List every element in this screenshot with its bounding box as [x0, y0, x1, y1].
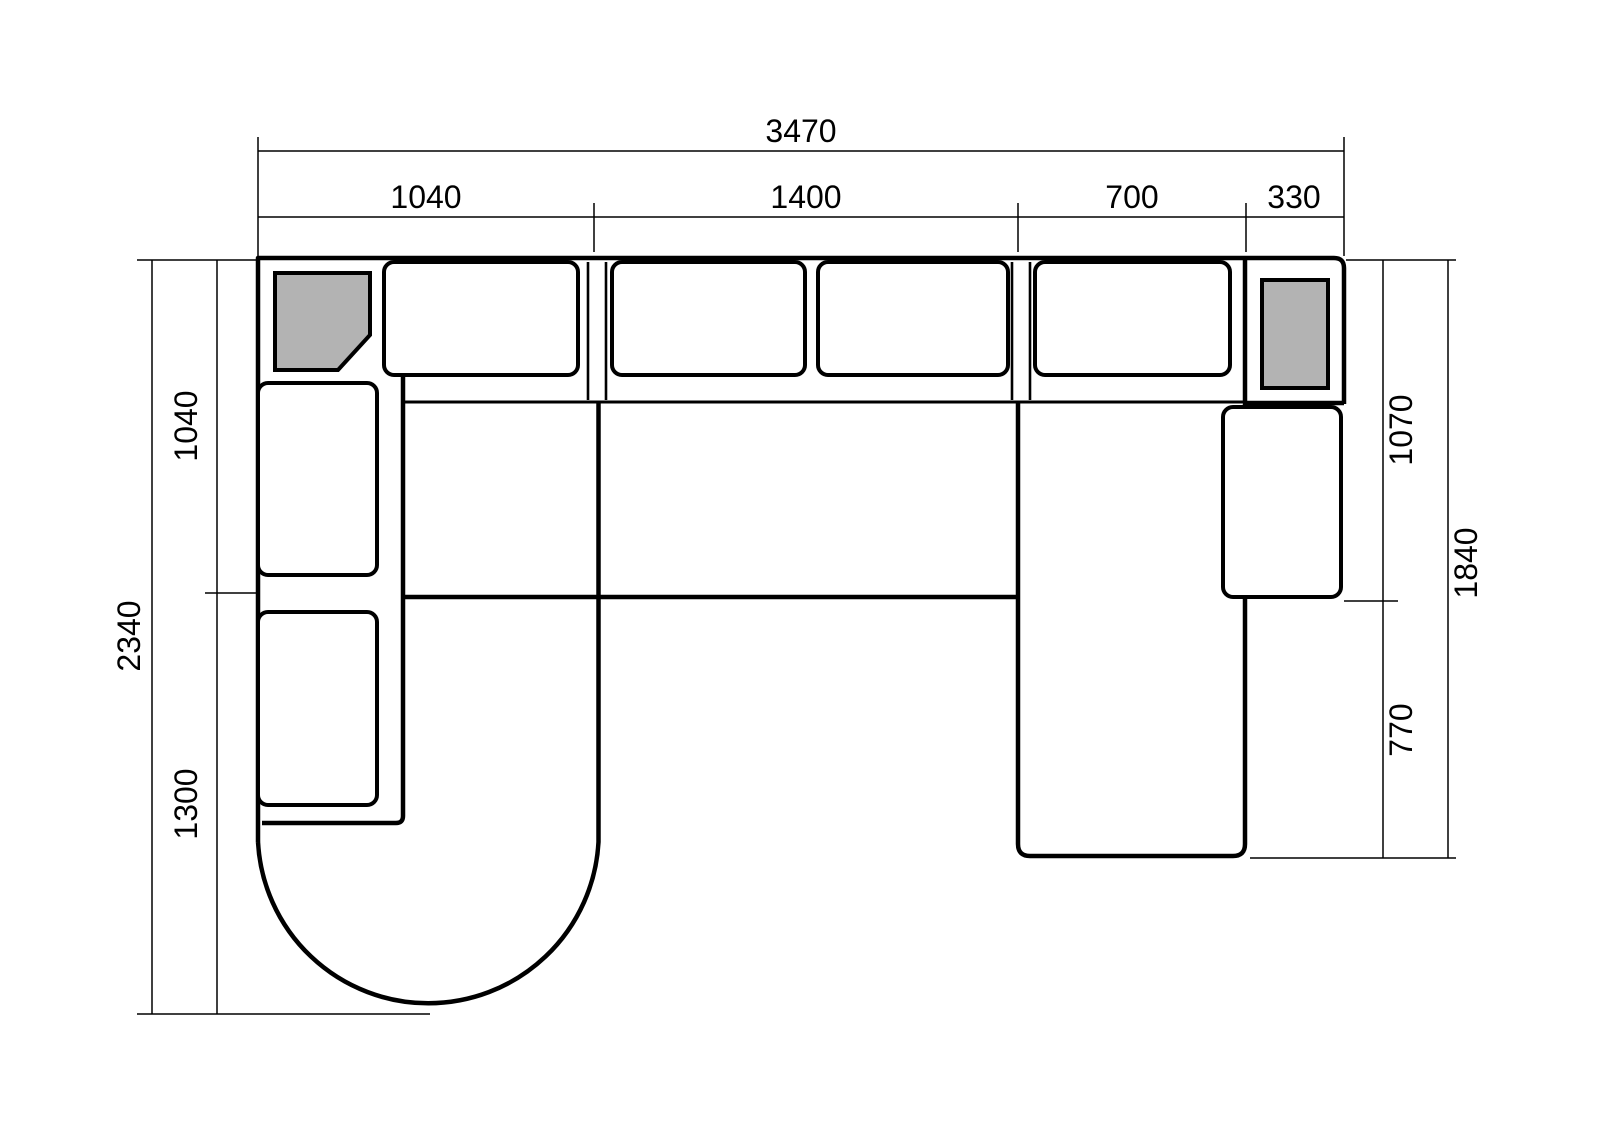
- label-right-seg-770: 770: [1383, 703, 1419, 756]
- floorplan-svg: 3470 1040 1400 700 330 1040 2340 1300 10…: [0, 0, 1600, 1133]
- sofa-dimension-drawing: 3470 1040 1400 700 330 1040 2340 1300 10…: [0, 0, 1600, 1133]
- back-cushion-3: [818, 262, 1008, 375]
- label-right-seg-1070: 1070: [1383, 394, 1419, 465]
- end-shelf-rect: [1262, 280, 1328, 388]
- back-cushion-4: [1035, 262, 1230, 375]
- right-side-cushion: [1223, 407, 1341, 597]
- cushion-group: [258, 262, 1341, 805]
- back-cushion-2: [612, 262, 805, 375]
- right-chaise-outline: [1018, 402, 1245, 856]
- left-arm-cushion-2: [258, 612, 377, 805]
- label-top-total: 3470: [765, 113, 836, 149]
- left-arm-cushion-1: [258, 383, 377, 575]
- label-top-seg-1040: 1040: [390, 179, 461, 215]
- corner-shelf-pentagon: [275, 273, 370, 370]
- label-left-seg-1040: 1040: [168, 390, 204, 461]
- label-left-total: 2340: [111, 600, 147, 671]
- back-cushion-1: [384, 262, 578, 375]
- label-top-seg-1400: 1400: [770, 179, 841, 215]
- label-right-total: 1840: [1448, 527, 1484, 598]
- label-left-seg-1300: 1300: [168, 768, 204, 839]
- label-top-seg-700: 700: [1105, 179, 1158, 215]
- label-top-seg-330: 330: [1267, 179, 1320, 215]
